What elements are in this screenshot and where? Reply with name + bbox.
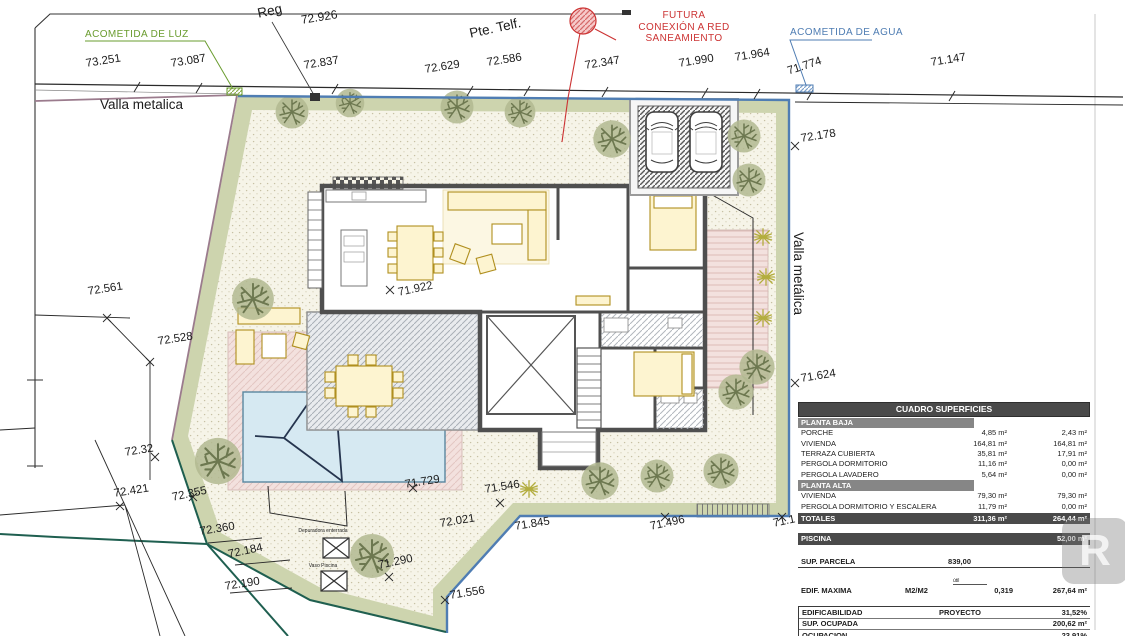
row-value: 31,52% bbox=[1025, 609, 1087, 617]
row-value-1: 11,79 m² bbox=[941, 503, 1007, 511]
agua-connection-icon bbox=[796, 85, 813, 92]
row-value-1: 164,81 m² bbox=[941, 440, 1007, 448]
registro-box-icon bbox=[310, 93, 320, 101]
row-value-1: 79,30 m² bbox=[941, 492, 1007, 500]
site-plan-drawing: ACOMETIDA DE LUZ ACOMETIDA DE AGUA FUTUR… bbox=[0, 0, 1125, 636]
table-row: PERGOLA DORMITORIO 11,16 m² 0,00 m² bbox=[798, 459, 1090, 469]
vaso-piscina-label: Vaso Piscina bbox=[290, 563, 356, 569]
row-value-2: 0,00 m² bbox=[1007, 460, 1087, 468]
row-value-1: 5,64 m² bbox=[941, 471, 1007, 479]
depuradora-label: Depuradora enterrada bbox=[288, 528, 358, 534]
row-value-2: 0,00 m² bbox=[1007, 471, 1087, 479]
edif-maxima-unit: M2/M2 bbox=[905, 587, 947, 595]
edif-maxima-coef-value: 0,319 bbox=[994, 586, 1013, 595]
acometida-agua-label: ACOMETIDA DE AGUA bbox=[790, 27, 903, 38]
planta-baja-header: PLANTA BAJA bbox=[798, 418, 974, 429]
table-row: EDIFICABILIDAD PROYECTO 31,52% bbox=[799, 607, 1090, 619]
row-label: VIVIENDA bbox=[801, 492, 941, 500]
table-row: PORCHE 4,85 m² 2,43 m² bbox=[798, 428, 1090, 438]
covered-terrace bbox=[307, 312, 480, 430]
surfaces-table: CUADRO SUPERFICIES PLANTA BAJA PORCHE 4,… bbox=[798, 402, 1090, 636]
row-value-1: 4,85 m² bbox=[941, 429, 1007, 437]
sup-parcela-label: SUP. PARCELA bbox=[801, 558, 925, 566]
valla-metalica-right-label: Valla metálica bbox=[791, 232, 806, 315]
futura-line3: SANEAMIENTO bbox=[645, 33, 722, 44]
totals-value-1: 311,36 m² bbox=[941, 515, 1007, 523]
edif-maxima-row: EDIF. MAXIMA M2/M2 útil 0,319 267,64 m² bbox=[798, 577, 1090, 596]
row-mid: PROYECTO bbox=[939, 609, 1025, 617]
totals-label: TOTALES bbox=[801, 515, 941, 523]
row-label: EDIFICABILIDAD bbox=[802, 609, 939, 617]
edif-maxima-value: 267,64 m² bbox=[1013, 587, 1087, 595]
futura-line2: CONEXIÓN A RED bbox=[638, 22, 729, 33]
row-value-2: 2,43 m² bbox=[1007, 429, 1087, 437]
piscina-label: PISCINA bbox=[801, 535, 1007, 543]
row-label: VIVIENDA bbox=[801, 440, 941, 448]
row-value: 23,91% bbox=[1025, 632, 1087, 636]
luz-connection-icon bbox=[227, 88, 242, 95]
sup-parcela-value: 839,00 bbox=[925, 558, 971, 566]
table-row: OCUPACION 23,91% bbox=[799, 630, 1090, 636]
row-value: 200,62 m² bbox=[1025, 620, 1087, 628]
row-label: PORCHE bbox=[801, 429, 941, 437]
row-value-2: 0,00 m² bbox=[1007, 503, 1087, 511]
table-row: VIVIENDA 79,30 m² 79,30 m² bbox=[798, 491, 1090, 501]
table-row: PERGOLA DORMITORIO Y ESCALERA 11,79 m² 0… bbox=[798, 501, 1090, 511]
valla-metalica-top-label: Valla metalica bbox=[100, 97, 183, 112]
table-title: CUADRO SUPERFICIES bbox=[798, 402, 1090, 417]
futura-conexion-label: FUTURA CONEXIÓN A RED SANEAMIENTO bbox=[604, 10, 764, 45]
edif-maxima-label: EDIF. MAXIMA bbox=[801, 587, 905, 595]
sewer-connection-icon bbox=[570, 8, 596, 34]
row-label: TERRAZA CUBIERTA bbox=[801, 450, 941, 458]
edif-maxima-coef: útil 0,319 bbox=[947, 579, 1013, 594]
row-label: PERGOLA LAVADERO bbox=[801, 471, 941, 479]
car-icon bbox=[645, 112, 679, 172]
row-value-1: 11,16 m² bbox=[941, 460, 1007, 468]
row-value-2: 17,91 m² bbox=[1007, 450, 1087, 458]
acometida-luz-label: ACOMETIDA DE LUZ bbox=[85, 29, 189, 40]
row-value-2: 79,30 m² bbox=[1007, 492, 1087, 500]
watermark-badge: R bbox=[1062, 518, 1125, 584]
ratios-block: EDIFICABILIDAD PROYECTO 31,52% SUP. OCUP… bbox=[798, 606, 1090, 636]
table-row: TERRAZA CUBIERTA 35,81 m² 17,91 m² bbox=[798, 449, 1090, 459]
sup-parcela-row: SUP. PARCELA 839,00 bbox=[798, 556, 1090, 569]
car-icon bbox=[689, 112, 723, 172]
carport bbox=[630, 99, 738, 195]
table-row: VIVIENDA 164,81 m² 164,81 m² bbox=[798, 438, 1090, 448]
row-label: OCUPACION bbox=[802, 632, 939, 636]
futura-line1: FUTURA bbox=[663, 10, 706, 21]
row-value-2: 164,81 m² bbox=[1007, 440, 1087, 448]
planta-alta-header: PLANTA ALTA bbox=[798, 480, 974, 491]
watermark-letter: R bbox=[1079, 526, 1111, 576]
row-label: PERGOLA DORMITORIO Y ESCALERA bbox=[801, 503, 941, 511]
row-label: SUP. OCUPADA bbox=[802, 620, 939, 628]
piscina-row: PISCINA 52,00 m² bbox=[798, 533, 1090, 545]
row-label: PERGOLA DORMITORIO bbox=[801, 460, 941, 468]
table-row: PERGOLA LAVADERO 5,64 m² 0,00 m² bbox=[798, 469, 1090, 479]
row-value-1: 35,81 m² bbox=[941, 450, 1007, 458]
edif-maxima-coef-label: útil bbox=[953, 579, 987, 585]
table-row: SUP. OCUPADA 200,62 m² bbox=[799, 619, 1090, 631]
totals-row: TOTALES 311,36 m² 264,44 m² bbox=[798, 513, 1090, 525]
